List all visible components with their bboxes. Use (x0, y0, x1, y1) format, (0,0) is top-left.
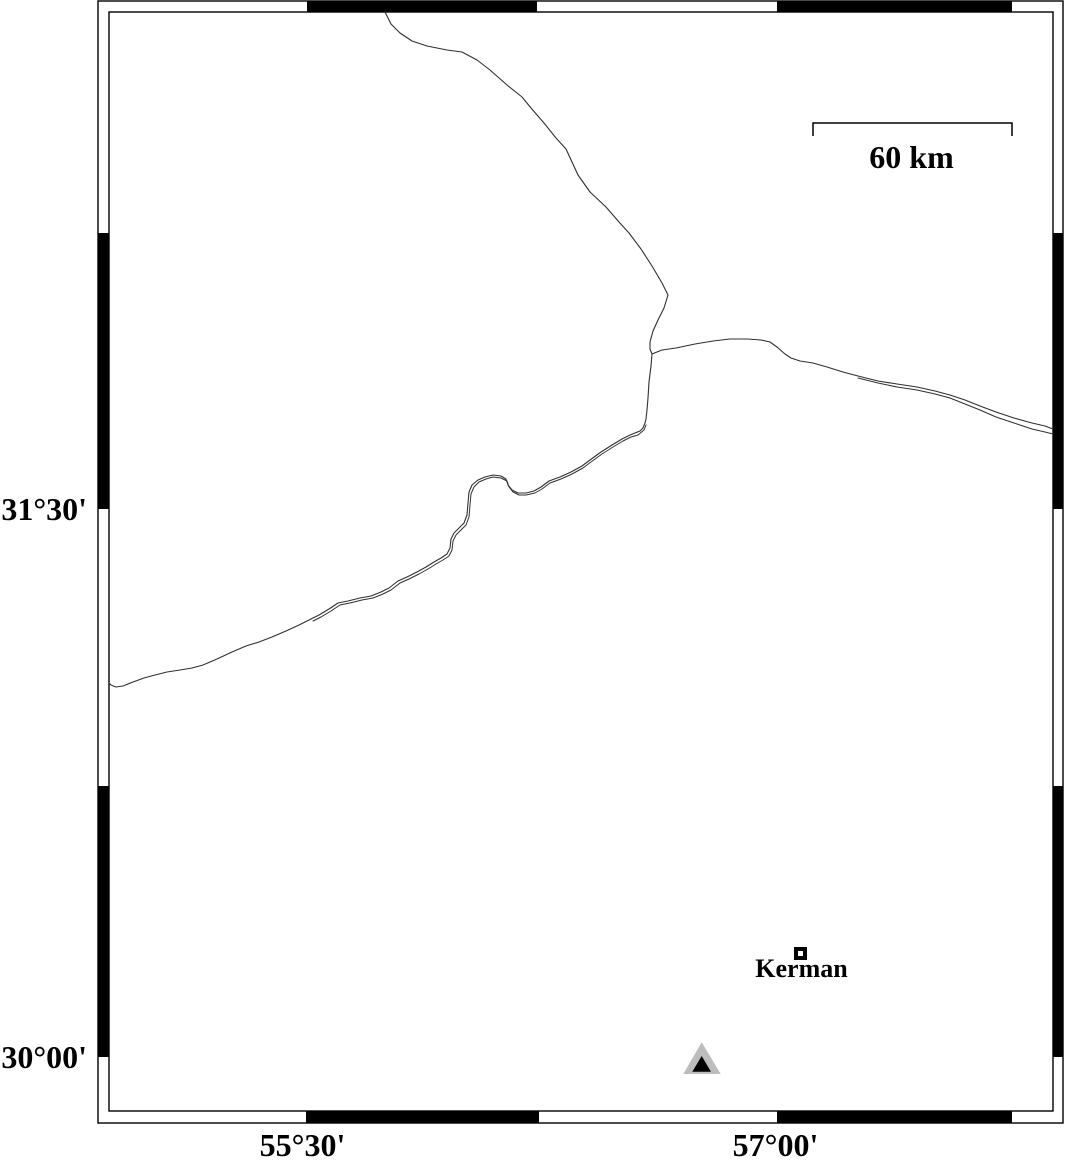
scale-bar-label: 60 km (851, 141, 972, 173)
border-tick-left (98, 786, 109, 1057)
border-tick-bottom (306, 1111, 539, 1123)
border-tick-right (1053, 233, 1063, 509)
lon-label-57-00: 57°00' (715, 1129, 836, 1161)
border-tick-right (1053, 786, 1063, 1057)
boundary-line-southwest-b (313, 425, 646, 621)
boundary-line-north (385, 12, 668, 354)
border-tick-top (307, 1, 537, 12)
city-label-kerman: Kerman (741, 956, 862, 982)
scale-bar (813, 123, 1012, 136)
boundary-line-southwest-a (109, 354, 652, 687)
border-tick-bottom (777, 1111, 1012, 1123)
frame-inner (109, 12, 1053, 1111)
lat-label-30-00: 30°00' (0, 1041, 87, 1073)
map-canvas: 31°30' 30°00' 55°30' 57°00' 60 km Kerman (0, 0, 1066, 1161)
lon-label-55-30: 55°30' (242, 1129, 363, 1161)
border-tick-top (777, 1, 1012, 12)
lat-label-31-30: 31°30' (0, 493, 87, 525)
border-tick-left (98, 233, 109, 509)
boundary-line-east-b (858, 378, 1053, 434)
